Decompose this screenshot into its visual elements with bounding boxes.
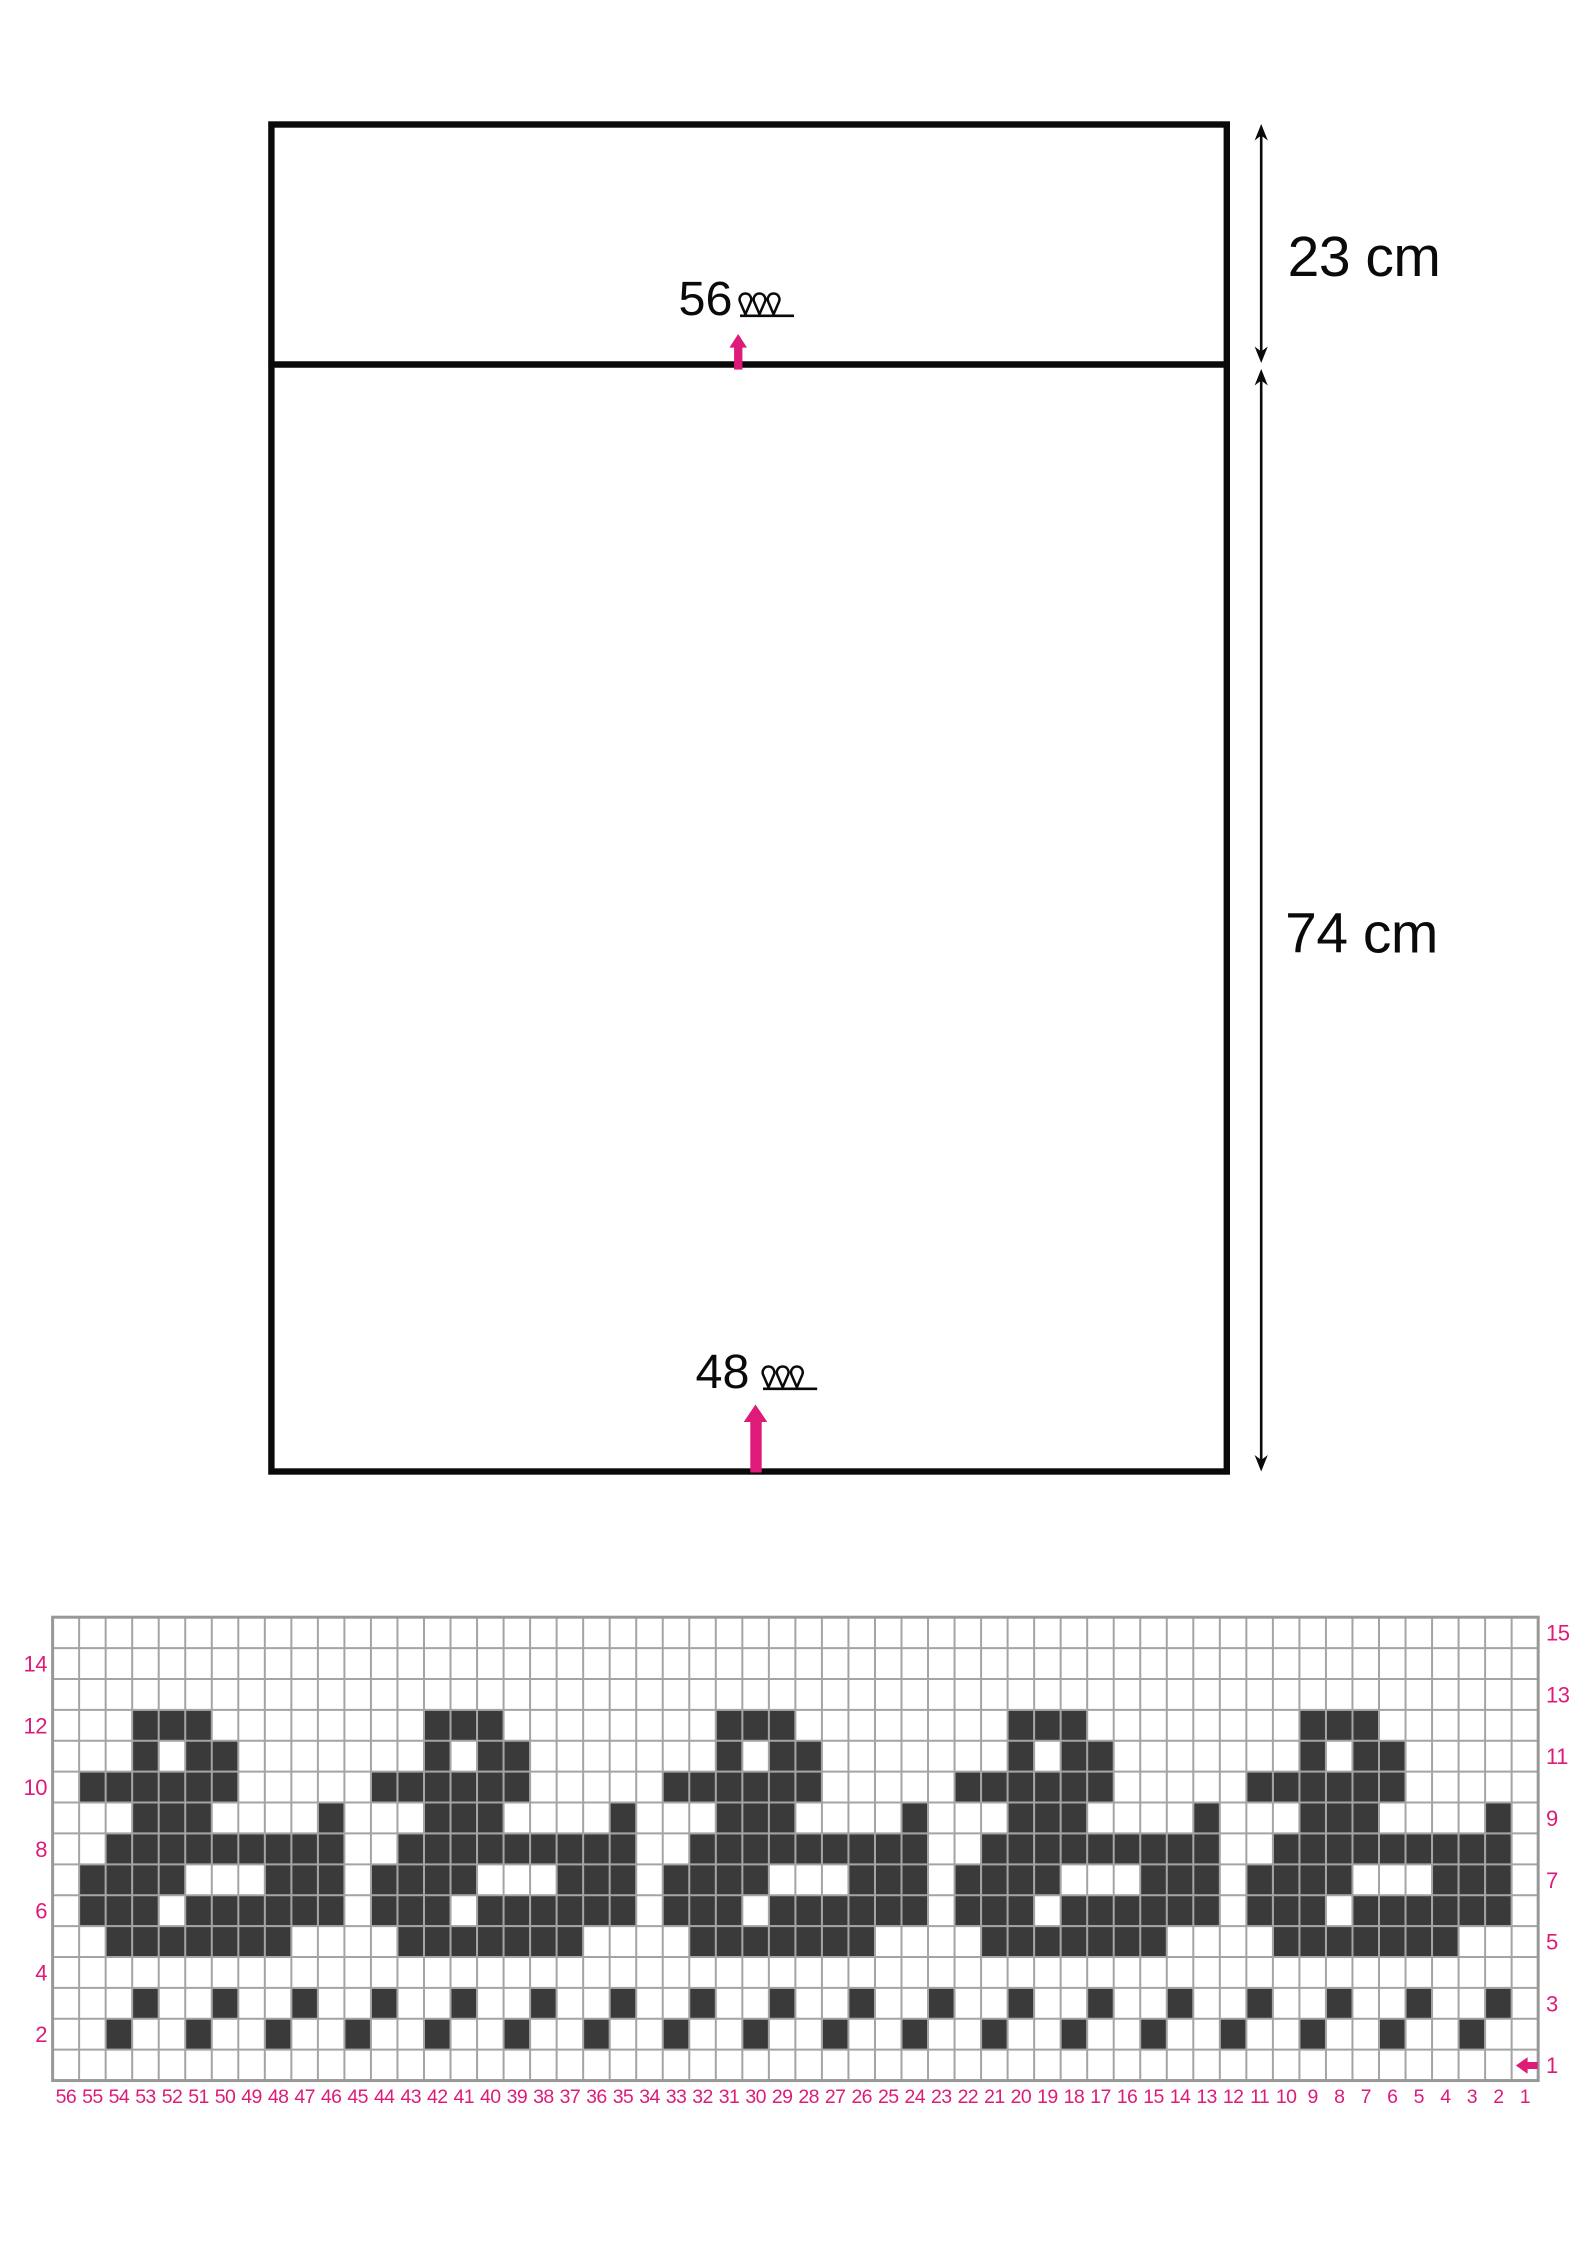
svg-text:45: 45 xyxy=(347,2086,368,2108)
svg-text:14: 14 xyxy=(1170,2086,1191,2108)
svg-text:35: 35 xyxy=(613,2086,634,2108)
svg-text:53: 53 xyxy=(135,2086,156,2108)
svg-text:48: 48 xyxy=(696,1345,750,1399)
svg-text:12: 12 xyxy=(1223,2086,1244,2108)
svg-text:33: 33 xyxy=(666,2086,687,2108)
svg-text:54: 54 xyxy=(109,2086,130,2108)
svg-text:56: 56 xyxy=(679,272,733,326)
svg-text:32: 32 xyxy=(692,2086,713,2108)
svg-text:23: 23 xyxy=(931,2086,952,2108)
svg-text:5: 5 xyxy=(1546,1930,1558,1955)
svg-text:10: 10 xyxy=(1276,2086,1297,2108)
svg-text:2: 2 xyxy=(35,2022,47,2047)
svg-text:24: 24 xyxy=(905,2086,926,2108)
svg-text:50: 50 xyxy=(215,2086,236,2108)
svg-text:22: 22 xyxy=(958,2086,979,2108)
svg-text:27: 27 xyxy=(825,2086,846,2108)
svg-text:41: 41 xyxy=(454,2086,475,2108)
svg-text:6: 6 xyxy=(35,1899,47,1924)
svg-text:7: 7 xyxy=(1361,2086,1371,2108)
svg-text:52: 52 xyxy=(162,2086,183,2108)
svg-text:25: 25 xyxy=(878,2086,899,2108)
svg-text:14: 14 xyxy=(24,1652,48,1677)
svg-text:31: 31 xyxy=(719,2086,740,2108)
svg-text:26: 26 xyxy=(851,2086,872,2108)
svg-text:51: 51 xyxy=(188,2086,209,2108)
svg-text:46: 46 xyxy=(321,2086,342,2108)
svg-text:1: 1 xyxy=(1520,2086,1530,2108)
svg-text:12: 12 xyxy=(24,1713,48,1738)
svg-text:16: 16 xyxy=(1117,2086,1138,2108)
svg-text:55: 55 xyxy=(82,2086,103,2108)
svg-text:3: 3 xyxy=(1546,1991,1558,2016)
svg-text:74 cm: 74 cm xyxy=(1285,902,1438,966)
svg-text:17: 17 xyxy=(1090,2086,1111,2108)
svg-text:8: 8 xyxy=(35,1837,47,1862)
svg-text:47: 47 xyxy=(294,2086,315,2108)
svg-text:8: 8 xyxy=(1334,2086,1344,2108)
svg-text:5: 5 xyxy=(1414,2086,1425,2108)
svg-text:1: 1 xyxy=(1546,2053,1558,2078)
svg-text:4: 4 xyxy=(35,1960,47,1985)
svg-text:20: 20 xyxy=(1011,2086,1032,2108)
svg-text:4: 4 xyxy=(1440,2086,1451,2108)
svg-text:43: 43 xyxy=(400,2086,421,2108)
svg-text:11: 11 xyxy=(1250,2086,1269,2108)
svg-text:13: 13 xyxy=(1196,2086,1217,2108)
svg-text:13: 13 xyxy=(1546,1682,1570,1707)
svg-text:2: 2 xyxy=(1493,2086,1503,2108)
svg-text:56: 56 xyxy=(56,2086,77,2108)
svg-text:9: 9 xyxy=(1546,1806,1558,1831)
svg-text:19: 19 xyxy=(1037,2086,1058,2108)
svg-text:18: 18 xyxy=(1064,2086,1085,2108)
svg-text:40: 40 xyxy=(480,2086,501,2108)
svg-text:7: 7 xyxy=(1546,1868,1558,1893)
svg-text:38: 38 xyxy=(533,2086,554,2108)
svg-text:44: 44 xyxy=(374,2086,395,2108)
svg-text:30: 30 xyxy=(745,2086,766,2108)
svg-text:49: 49 xyxy=(241,2086,262,2108)
svg-text:15: 15 xyxy=(1546,1621,1570,1646)
svg-text:9: 9 xyxy=(1308,2086,1318,2108)
svg-text:39: 39 xyxy=(507,2086,528,2108)
svg-text:21: 21 xyxy=(984,2086,1005,2108)
svg-text:6: 6 xyxy=(1387,2086,1397,2108)
svg-text:29: 29 xyxy=(772,2086,793,2108)
svg-text:11: 11 xyxy=(1546,1744,1568,1769)
svg-text:3: 3 xyxy=(1467,2086,1477,2108)
svg-text:37: 37 xyxy=(560,2086,581,2108)
svg-text:28: 28 xyxy=(798,2086,819,2108)
svg-text:10: 10 xyxy=(24,1775,48,1800)
svg-text:48: 48 xyxy=(268,2086,289,2108)
svg-text:34: 34 xyxy=(639,2086,660,2108)
svg-text:15: 15 xyxy=(1143,2086,1164,2108)
svg-text:42: 42 xyxy=(427,2086,448,2108)
svg-text:23 cm: 23 cm xyxy=(1288,225,1441,289)
svg-text:36: 36 xyxy=(586,2086,607,2108)
